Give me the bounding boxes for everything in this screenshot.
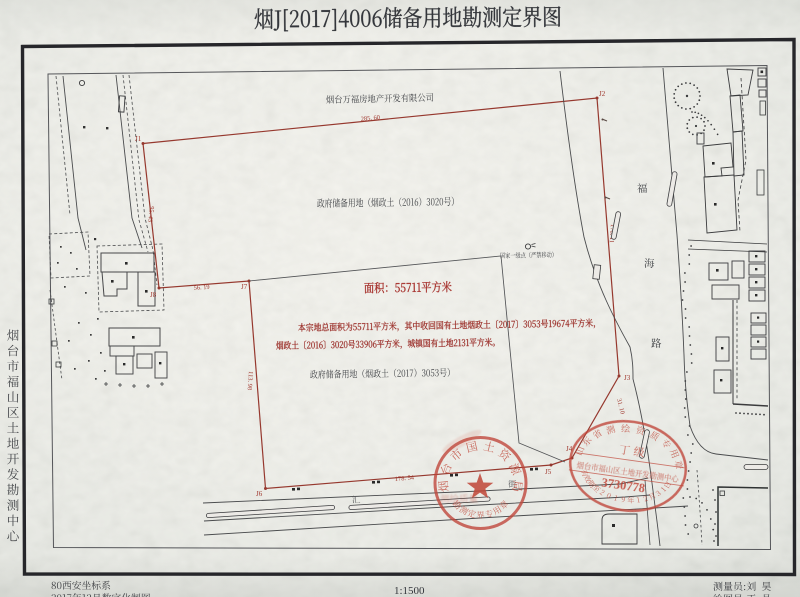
svg-text:1:1500: 1:1500: [394, 585, 425, 597]
svg-text:J8: J8: [150, 291, 157, 299]
svg-text:J2: J2: [599, 90, 606, 98]
svg-text:J1: J1: [135, 135, 142, 143]
svg-text:113. 98: 113. 98: [246, 371, 254, 390]
svg-text:J5: J5: [545, 468, 552, 476]
svg-text:J6: J6: [256, 490, 263, 498]
svg-text:J3: J3: [624, 374, 631, 382]
svg-text:56. 19: 56. 19: [193, 284, 209, 292]
svg-text:J7: J7: [241, 283, 248, 291]
